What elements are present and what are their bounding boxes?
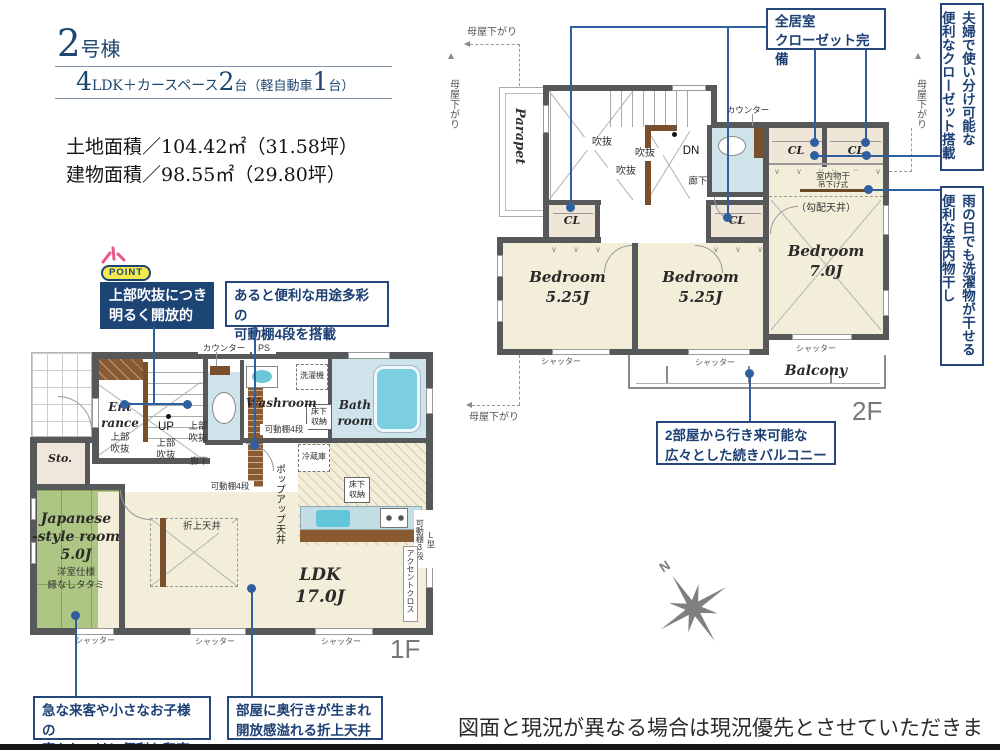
- spec-line: 4LDK＋カースペース2台（軽自動車1台）: [76, 67, 396, 96]
- connector-dot: [864, 185, 873, 194]
- wall-sto-right: [85, 440, 90, 484]
- kitchen-counter-front: [300, 530, 422, 542]
- washer-label: 洗濯機: [297, 371, 327, 381]
- window: [426, 388, 433, 414]
- dn-label: DN: [678, 144, 704, 158]
- moya-dash: [889, 171, 912, 172]
- wall-sto-japanese: [30, 484, 125, 490]
- counter-label-1f: カウンター: [198, 343, 250, 354]
- moya-label-right: 母屋下がり: [913, 62, 926, 146]
- counter-leader-2f: [752, 114, 753, 126]
- connector: [570, 26, 572, 208]
- header-rule-bottom: [55, 98, 392, 99]
- moya-dash: [470, 44, 520, 45]
- connector-dot: [183, 400, 192, 409]
- stairwell-void: [648, 131, 690, 199]
- void-label-stair2: 上部 吹抜: [178, 421, 218, 445]
- cl-label-left: CL: [551, 214, 593, 228]
- kitchen-stove: [380, 508, 408, 528]
- window: [883, 290, 889, 316]
- connector-dot: [250, 441, 259, 450]
- pillar: [160, 518, 166, 587]
- drying-bar: [800, 189, 866, 192]
- connector-dot: [861, 138, 870, 147]
- wall-2f-jut: [497, 237, 549, 243]
- moya-arrow: [466, 402, 472, 408]
- point-badge: POINT: [101, 265, 151, 281]
- wall-under-washbath: [243, 438, 433, 443]
- closet-marks: [551, 245, 608, 254]
- hall-label-2f: 廊下: [682, 176, 714, 188]
- moya-label-left: 母屋下がり: [446, 62, 459, 146]
- counter-2f: [754, 128, 764, 158]
- japanese-note1: 洋室仕様: [31, 567, 121, 579]
- connector-dot: [810, 151, 819, 160]
- connector: [815, 155, 941, 157]
- shutter-label-1f-a: シャッター: [72, 636, 118, 646]
- moya-label-top: 母屋下がり: [462, 27, 522, 40]
- closet-front-line: [769, 163, 883, 165]
- hanger-pipe: [830, 141, 881, 142]
- shutter-label-2f-a: シャッター: [538, 357, 584, 367]
- cl-label-mid: CL: [713, 214, 761, 228]
- connector: [749, 374, 751, 422]
- shutter-label-2f-c: シャッター: [793, 344, 839, 354]
- connector-dot: [862, 151, 871, 160]
- stairs-2f: [600, 91, 690, 127]
- spec-num-ldk: 4: [76, 67, 92, 96]
- spec-text-3: （軽自動車: [247, 79, 312, 94]
- moya-arrow: [464, 41, 470, 47]
- building-title: 2号棟: [57, 22, 121, 65]
- sloped-ceiling-label: （勾配天井）: [769, 203, 883, 216]
- connector: [75, 616, 77, 696]
- moya-dash: [519, 44, 520, 86]
- connector: [814, 50, 816, 143]
- wall-2f-top-right: [711, 122, 889, 128]
- spec-text-4: 台）: [328, 79, 354, 94]
- connector: [865, 50, 867, 143]
- spec-num-kei: 1: [312, 67, 328, 96]
- window: [672, 85, 706, 91]
- connector: [570, 26, 767, 28]
- connector-dot: [745, 369, 754, 378]
- building-suffix: 号棟: [81, 37, 121, 61]
- storage-label: Sto.: [38, 452, 82, 466]
- toilet-fixture-2f: [718, 136, 746, 156]
- floor-plan-sheet: 2号棟 4LDK＋カースペース2台（軽自動車1台） 土地面積／104.42㎡（3…: [0, 0, 1000, 750]
- kitchen-sink: [316, 510, 350, 527]
- window: [315, 628, 373, 635]
- bedroom7-label: Bedroom 7.0J: [769, 242, 883, 281]
- underfloor-storage-kitchen: 床下 収納: [344, 477, 370, 503]
- connector: [870, 189, 941, 191]
- dn-dot: [672, 132, 677, 137]
- ldk-label: LDK 17.0J: [285, 564, 355, 608]
- wall-cl-divider-top: [822, 122, 827, 167]
- window: [552, 349, 610, 355]
- spec-num-cars: 2: [219, 67, 235, 96]
- connector-dot: [566, 203, 575, 212]
- connector: [153, 327, 155, 405]
- sloped-ceiling-line: [769, 196, 883, 197]
- connector: [124, 403, 188, 405]
- toilet-fixture-1f: [212, 392, 236, 424]
- his-hers-closet-callout: 夫婦で使い分け可能な 便利なクローゼット搭載: [940, 3, 984, 171]
- connector-dot: [71, 611, 80, 620]
- japanese-note2: 縁なしタタミ: [31, 580, 121, 592]
- spec-text-2: 台: [234, 79, 247, 94]
- void-label-2f-b: 吹抜: [627, 148, 663, 161]
- connector-dot: [120, 400, 129, 409]
- balcony-post: [666, 366, 668, 383]
- moya-dash: [519, 355, 520, 405]
- bathtub: [374, 366, 420, 432]
- japanese-room-label: Japanese -style room 5.0J: [31, 510, 121, 565]
- accent-cloth-label: アクセントクロス: [403, 546, 418, 622]
- bedroom-right-label: Bedroom 5.25J: [638, 268, 763, 307]
- bathroom-label: Bath room: [334, 398, 376, 429]
- up-label: UP: [152, 420, 180, 434]
- bottom-bar: [0, 744, 1000, 750]
- moya-dash: [911, 128, 912, 172]
- drying-type-label: 吊下げ式: [806, 180, 860, 189]
- parapet-label: Parapet: [512, 108, 527, 208]
- window: [543, 105, 549, 133]
- void-label-entrance: 上部 吹抜: [100, 432, 140, 456]
- land-area: 土地面積／104.42㎡（31.58坪）: [66, 132, 358, 159]
- counter-1f: [210, 366, 230, 375]
- connector-dot: [247, 584, 256, 593]
- window: [76, 628, 114, 635]
- building-area: 建物面積／98.55㎡（29.80坪）: [66, 160, 346, 187]
- connector-dot: [723, 213, 732, 222]
- moya-arrow: [915, 53, 921, 59]
- ceiling-callout: 部屋に奥行きが生まれ 開放感溢れる折上天井: [227, 696, 383, 740]
- counter-label-2f: カウンター: [722, 105, 774, 116]
- washitsu-callout: 急な来客や小さなお子様の 寝かしつけに便利な和室: [33, 696, 211, 740]
- balcony-label: Balcony: [780, 362, 852, 380]
- shutter-label-1f-b: シャッター: [192, 637, 238, 647]
- connector: [727, 26, 729, 218]
- void-label-2f-a: 吹抜: [584, 137, 620, 150]
- indoor-drying-callout: 雨の日でも洗濯物が干せる 便利な室内物干し: [940, 186, 984, 366]
- moya-arrow: [448, 53, 454, 59]
- floor-label-2f: 2F: [852, 396, 882, 427]
- balcony-callout: 2部屋から行き来可能な 広々とした続きバルコニー: [656, 421, 836, 465]
- shutter-label-1f-c: シャッター: [318, 637, 364, 647]
- compass-icon: N: [616, 530, 768, 683]
- window: [883, 205, 889, 235]
- window: [190, 628, 246, 635]
- wall-cl-left-bottom: [543, 237, 601, 243]
- bedroom-left-label: Bedroom 5.25J: [503, 268, 632, 307]
- shelf4-label-lower: 可動棚4段: [206, 481, 254, 492]
- coffered-label: 折上天井: [172, 521, 232, 533]
- balcony-inner-line: [636, 383, 880, 384]
- connector: [251, 589, 253, 696]
- closet-marks: [713, 245, 770, 254]
- closets-callout: 全居室 クローゼット完備: [766, 8, 886, 50]
- wall-toilet-right: [240, 360, 244, 443]
- connector: [254, 327, 256, 445]
- shutter-label-2f-b: シャッター: [692, 358, 738, 368]
- hall-label-1f: 廊下: [186, 456, 212, 467]
- fridge-label: 冷蔵庫: [299, 452, 329, 462]
- floor-label-1f: 1F: [390, 634, 420, 665]
- up-dot: [166, 414, 171, 419]
- counter-leader-1f: [216, 352, 217, 366]
- stair-rail-v: [645, 125, 651, 205]
- popup-ceiling-label: ポップアップ天井: [272, 452, 285, 556]
- point-callout: 上部吹抜につき 明るく開放的: [100, 282, 214, 329]
- window: [348, 352, 390, 359]
- moya-label-bottom: 母屋下がり: [464, 412, 524, 425]
- spec-text-1: LDK＋カースペース: [92, 78, 219, 94]
- void-label-2f-c: 吹抜: [608, 166, 644, 179]
- wall-cl-mid-bottom: [706, 237, 768, 243]
- shelf-callout: あると便利な用途多彩の 可動棚4段を搭載: [225, 281, 389, 327]
- stair-rail-h: [645, 125, 677, 131]
- moya-dash: [472, 405, 520, 406]
- building-number: 2: [57, 22, 81, 65]
- connector-dot: [810, 138, 819, 147]
- window: [792, 334, 852, 340]
- shoe-cabinet: [95, 358, 143, 380]
- shelf4-label-upper: 可動棚4段: [260, 424, 308, 435]
